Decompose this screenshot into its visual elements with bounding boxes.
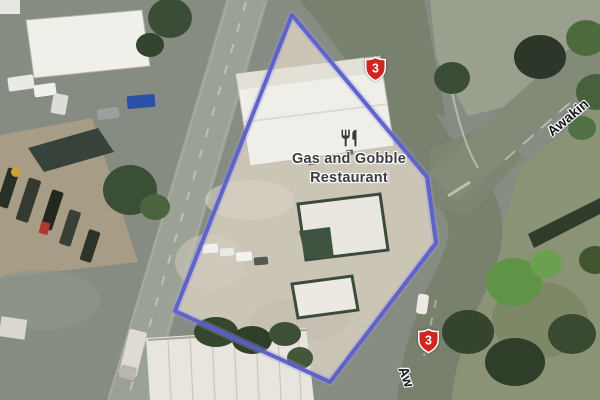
highway-shield-bottom: 3 — [417, 328, 440, 354]
poi-name-line1: Gas and Gobble — [270, 150, 428, 169]
shield-number: 3 — [372, 61, 379, 75]
map-viewport[interactable]: 3 3 Gas and Gobble Restaurant Awakin Aw — [0, 0, 600, 400]
satellite-imagery — [0, 0, 600, 400]
restaurant-icon — [339, 127, 359, 149]
shield-number: 3 — [425, 333, 432, 347]
highway-shield-top: 3 — [364, 56, 387, 82]
poi-label-gas-and-gobble[interactable]: Gas and Gobble Restaurant — [270, 127, 428, 188]
poi-name-line2: Restaurant — [270, 169, 428, 188]
